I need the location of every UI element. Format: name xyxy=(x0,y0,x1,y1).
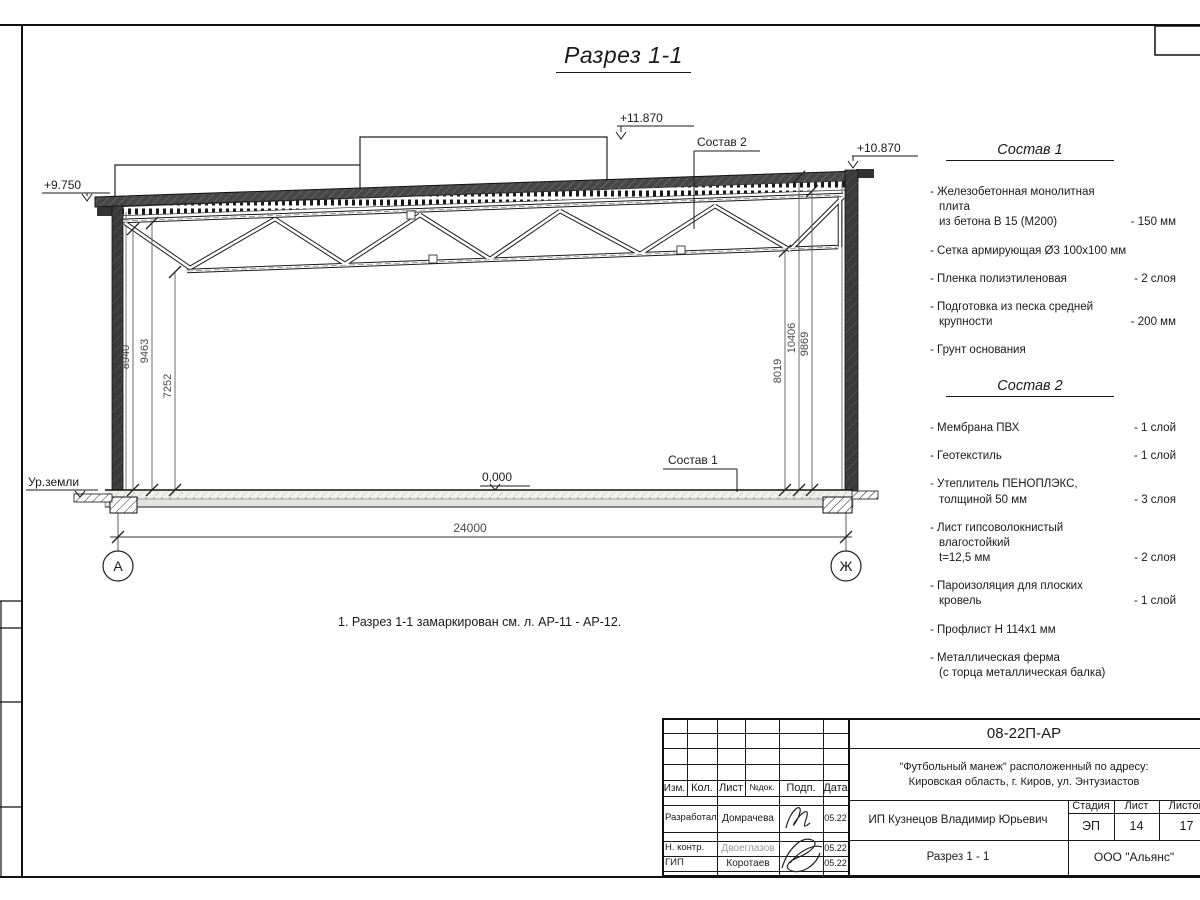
ground-strip-left xyxy=(74,494,112,502)
col-data: Дата xyxy=(823,780,848,796)
dim-9869: 9869 xyxy=(799,332,811,356)
leader-comp2-label: Состав 2 xyxy=(697,135,747,149)
sheet-label: Лист xyxy=(1114,800,1159,813)
list-item: - Геотекстиль - 1 слой xyxy=(930,449,1176,464)
list-item: - Утеплитель ПЕНОПЛЭКС, толщиной 50 мм -… xyxy=(930,477,1176,507)
company-name: ООО "Альянс" xyxy=(1068,840,1200,875)
layer-value: - 3 слоя xyxy=(1134,493,1176,508)
composition-2-panel: Состав 2 - Мембрана ПВХ - 1 слой - Геоте… xyxy=(930,378,1176,694)
dim-8940: 8940 xyxy=(120,345,132,369)
grid-axis-a: А xyxy=(103,551,133,581)
layer-name: - Мембрана ПВХ xyxy=(930,421,1019,436)
ground-level-label: Ур.земли xyxy=(28,475,79,489)
signature-developer xyxy=(786,808,810,828)
corner-stamp-box xyxy=(1155,26,1200,55)
sheets-total-label: Листов xyxy=(1159,800,1200,813)
layer-name: - Пароизоляция для плоских кровель xyxy=(930,579,1128,609)
layer-value: - 2 слоя xyxy=(1134,551,1176,566)
list-item: - Подготовка из песка средней крупности … xyxy=(930,300,1176,330)
col-izm: Изм. xyxy=(662,780,687,796)
layer-name: - Грунт основания xyxy=(930,343,1026,358)
axis-label-a: А xyxy=(113,558,123,574)
layer-value: - 1 слой xyxy=(1134,594,1176,609)
drawing-note: 1. Разрез 1-1 замаркирован см. л. АР-11 … xyxy=(338,615,621,629)
level-lantern-top: +11.870 xyxy=(620,111,663,125)
stage-value: ЭП xyxy=(1068,813,1114,840)
row-developer-role: Разработал xyxy=(665,805,717,832)
row-ncontrol-date: 05.22 xyxy=(823,841,848,856)
axis-label-zh: Ж xyxy=(840,558,853,574)
title-block: Изм. Кол. Лист №док. Подп. Дата Разработ… xyxy=(662,718,1200,877)
roof-edge-left xyxy=(97,207,113,216)
list-item: - Грунт основания xyxy=(930,343,1176,358)
layer-name: - Геотекстиль xyxy=(930,449,1004,464)
footing-right xyxy=(823,497,852,513)
list-item: - Мембрана ПВХ - 1 слой xyxy=(930,421,1176,436)
ground-strip-right xyxy=(852,491,878,499)
dim-7252: 7252 xyxy=(162,374,174,398)
footing-left xyxy=(110,497,137,513)
wall-right xyxy=(845,170,858,497)
page-title: Разрез 1-1 xyxy=(556,42,691,73)
grid-axis-zh: Ж xyxy=(831,551,861,581)
doc-number: 08-22П-АР xyxy=(848,719,1200,748)
layer-name: - Лист гипсоволокнистый влагостойкий t=1… xyxy=(930,521,1128,567)
client-name: ИП Кузнецов Владимир Юрьевич xyxy=(848,800,1068,840)
list-item: - Сетка армирующая Ø3 100x100 мм xyxy=(930,244,1176,259)
list-item: - Железобетонная монолитная плита из бет… xyxy=(930,185,1176,231)
layer-name: - Профлист Н 114х1 мм xyxy=(930,623,1056,638)
project-name: "Футбольный манеж" расположенный по адре… xyxy=(848,749,1200,800)
dim-9463: 9463 xyxy=(139,339,151,363)
floor-slab xyxy=(105,490,853,507)
dim-24000: 24000 xyxy=(453,521,487,535)
dim-10406: 10406 xyxy=(786,323,798,354)
level-floor: 0,000 xyxy=(482,470,512,484)
composition-1-list: - Железобетонная монолитная плита из бет… xyxy=(930,185,1176,358)
layer-value: - 2 слоя xyxy=(1134,272,1176,287)
layer-name: - Пленка полиэтиленовая xyxy=(930,272,1067,287)
sheets-total-value: 17 xyxy=(1159,813,1200,840)
row-gip-date: 05.22 xyxy=(823,856,848,871)
composition-1-heading: Состав 1 xyxy=(946,142,1114,161)
composition-2-heading: Состав 2 xyxy=(946,378,1114,397)
layer-name: - Железобетонная монолитная плита из бет… xyxy=(930,185,1125,231)
stage-label: Стадия xyxy=(1068,800,1114,813)
roof-edge-right xyxy=(856,169,874,178)
span-dimension: 24000 xyxy=(110,513,852,551)
list-item: - Пароизоляция для плоских кровель - 1 с… xyxy=(930,579,1176,609)
row-developer-date: 05.22 xyxy=(823,805,848,832)
layer-value: - 150 мм xyxy=(1131,215,1176,230)
list-item: - Профлист Н 114х1 мм xyxy=(930,623,1176,638)
row-developer-name: Домрачева xyxy=(717,805,779,832)
leader-comp1-label: Состав 1 xyxy=(668,453,718,467)
layer-value: - 200 мм xyxy=(1131,315,1176,330)
sheet-name: Разрез 1 - 1 xyxy=(848,840,1068,875)
layer-name: - Утеплитель ПЕНОПЛЭКС, толщиной 50 мм xyxy=(930,477,1078,507)
layer-name: - Сетка армирующая Ø3 100x100 мм xyxy=(930,244,1126,259)
composition-2-list: - Мембрана ПВХ - 1 слой - Геотекстиль - … xyxy=(930,421,1176,681)
col-podp: Подп. xyxy=(779,780,823,796)
layer-name: - Металлическая ферма (с торца металличе… xyxy=(930,651,1105,681)
col-ndok: №док. xyxy=(745,780,779,796)
col-list: Лист xyxy=(717,780,745,796)
level-roof-left: +9.750 xyxy=(44,178,81,192)
row-ncontrol-role: Н. контр. xyxy=(665,841,717,856)
list-item: - Лист гипсоволокнистый влагостойкий t=1… xyxy=(930,521,1176,567)
layer-value: - 1 слой xyxy=(1134,449,1176,464)
composition-1-panel: Состав 1 - Железобетонная монолитная пли… xyxy=(930,142,1176,371)
row-gip-role: ГИП xyxy=(665,856,717,871)
layer-value: - 1 слой xyxy=(1134,421,1176,436)
sheet-number: 14 xyxy=(1114,813,1159,840)
row-gip-name: Коротаев xyxy=(717,856,779,871)
col-kol: Кол. xyxy=(687,780,717,796)
level-roof-right: +10.870 xyxy=(857,141,901,155)
list-item: - Пленка полиэтиленовая - 2 слоя xyxy=(930,272,1176,287)
list-item: - Металлическая ферма (с торца металличе… xyxy=(930,651,1176,681)
drawing-sheet: 8940 9463 7252 8019 10406 9869 24000 А Ж xyxy=(0,0,1200,900)
row-ncontrol-name: Двоеглазов xyxy=(717,841,779,856)
dim-8019: 8019 xyxy=(772,359,784,383)
vertical-dimensions xyxy=(127,171,818,496)
left-margin-boxes xyxy=(0,601,22,877)
layer-name: - Подготовка из песка средней крупности xyxy=(930,300,1093,330)
